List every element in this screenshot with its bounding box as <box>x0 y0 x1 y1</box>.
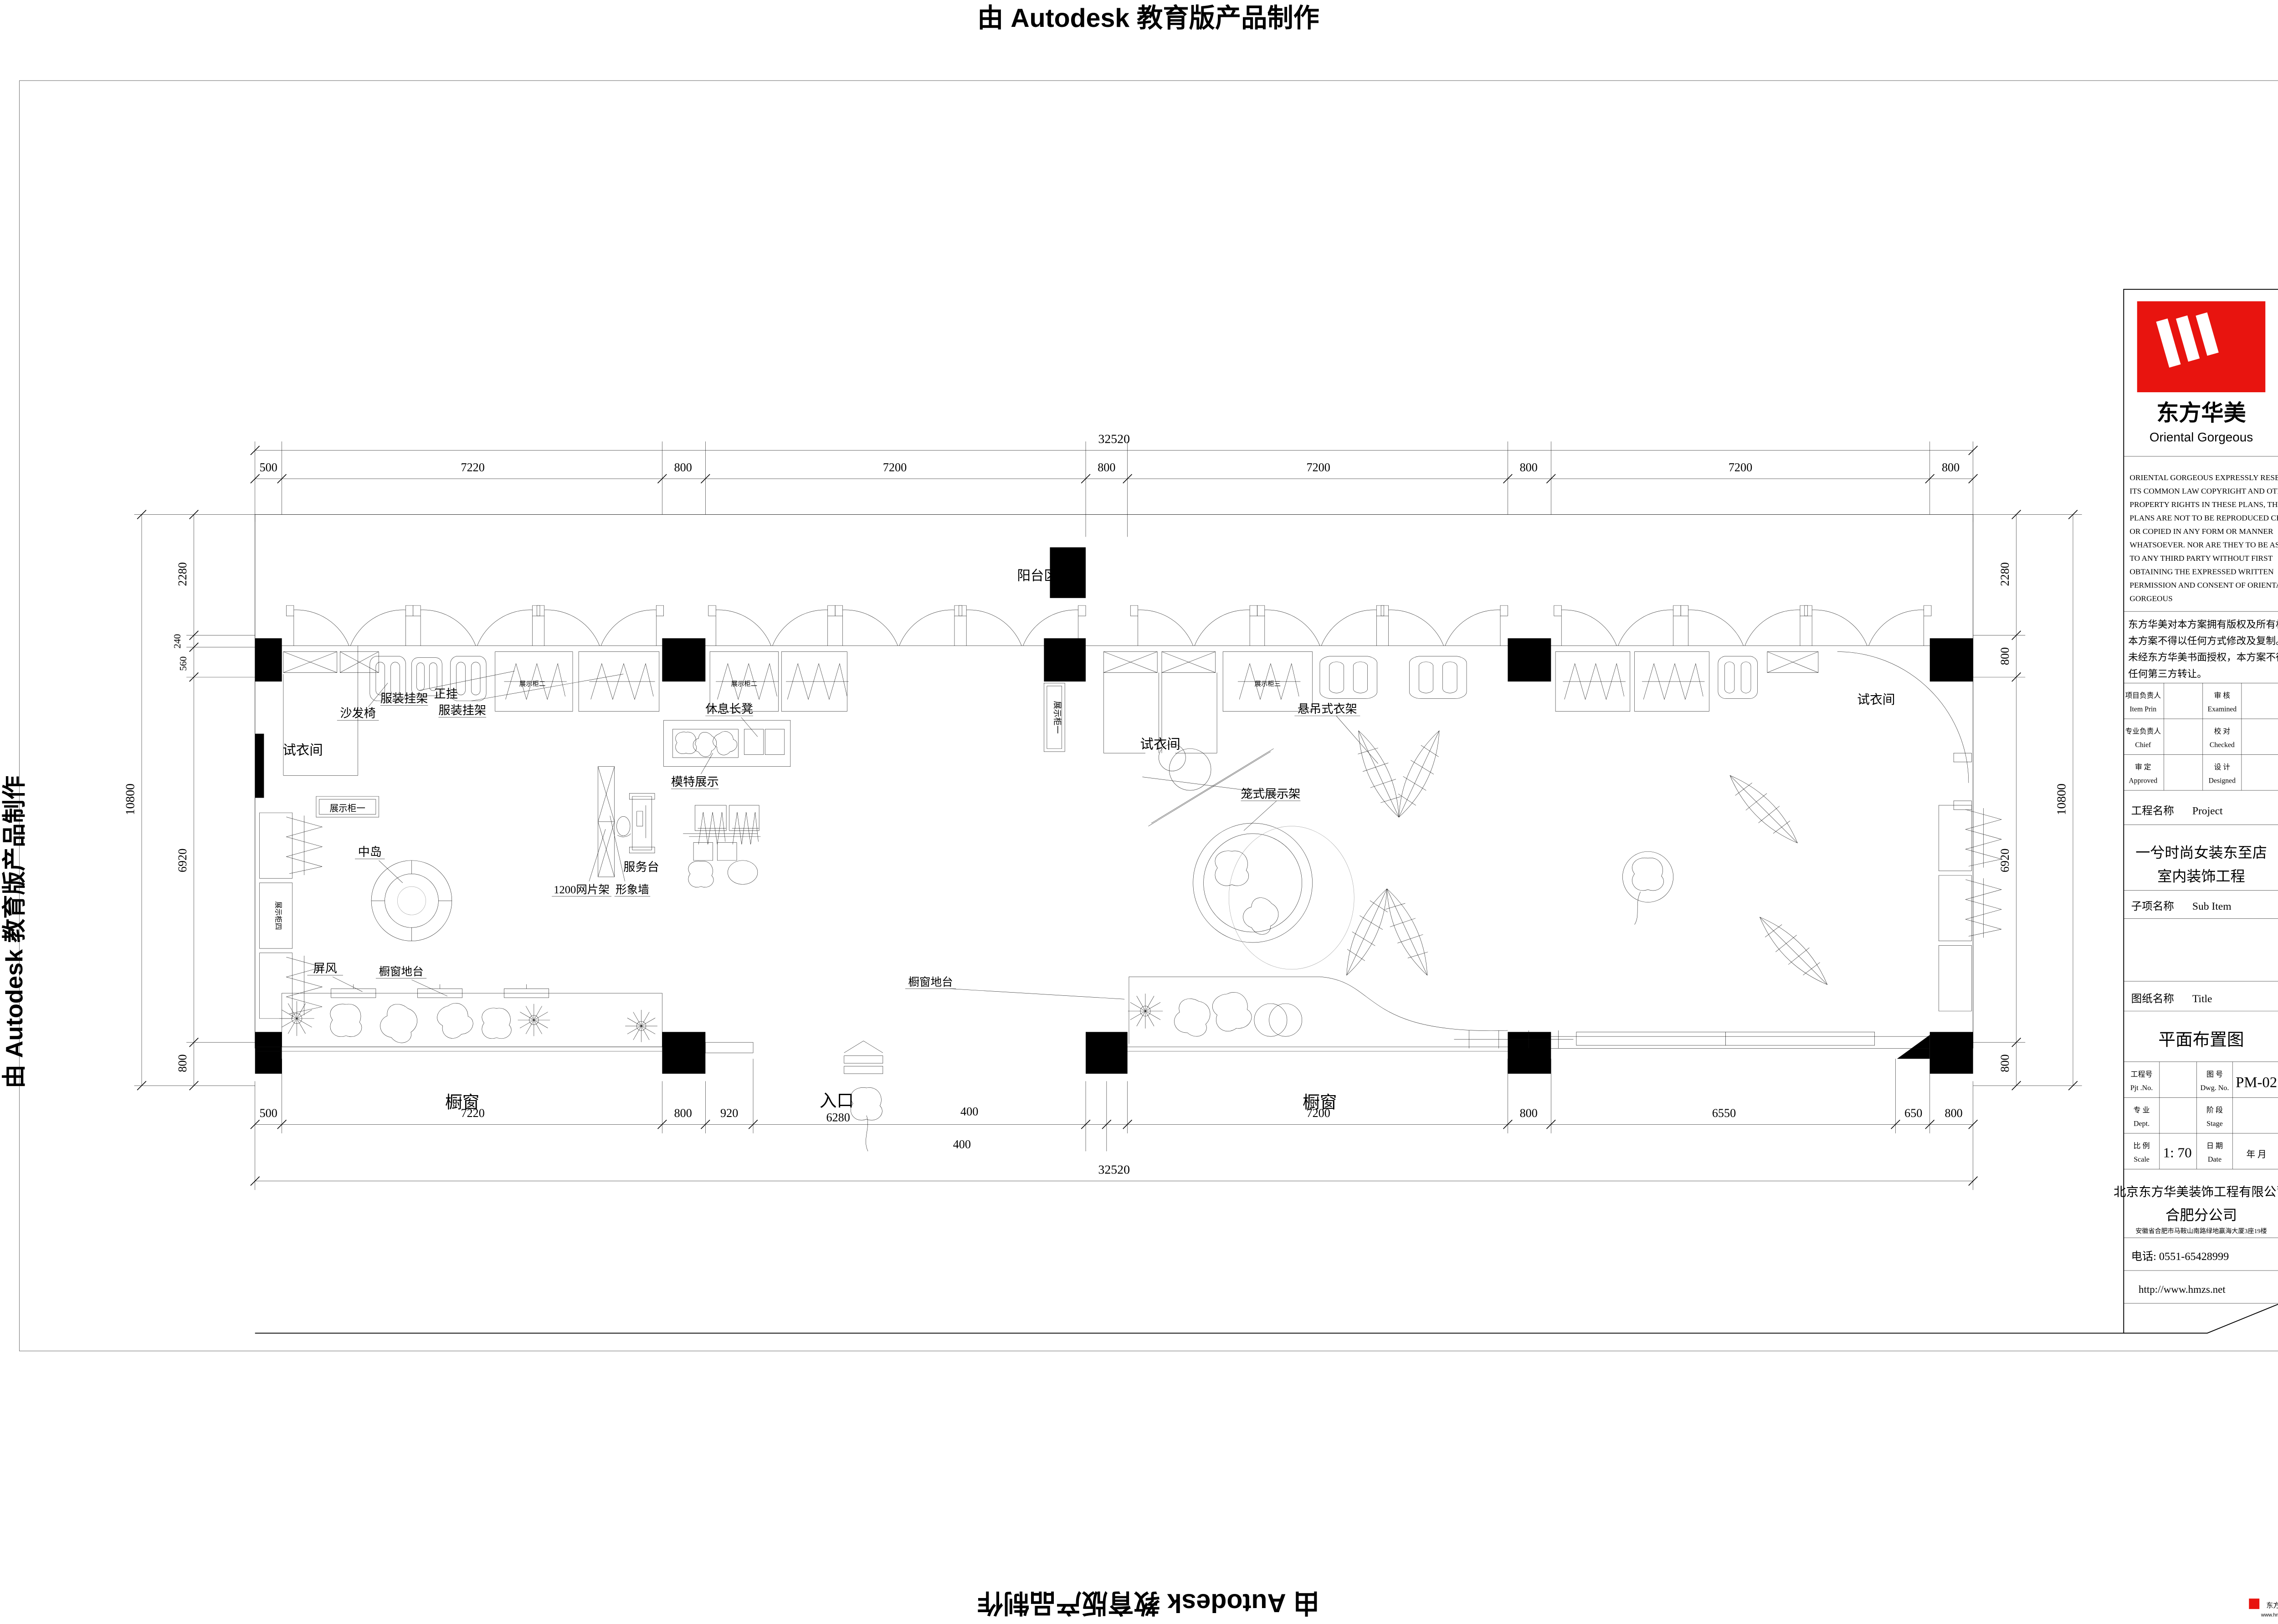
balcony-doors <box>286 605 1931 646</box>
signoff-label: Chief <box>2135 741 2151 749</box>
plan-fixtures <box>260 646 2001 1152</box>
structural-columns <box>255 547 1973 1074</box>
dim-bottom: 6550 <box>1712 1107 1736 1120</box>
brand-cn: 东方华美 <box>2156 401 2246 425</box>
subitem-label-cn: 子项名称 <box>2131 900 2174 912</box>
dim-bottom: 500 <box>260 1107 277 1120</box>
label-rack-2: 服装挂架 <box>438 704 486 717</box>
copyright-line: OBTAINING THE EXPRESSED WRITTEN <box>2129 567 2274 576</box>
window-left-contents <box>279 999 657 1047</box>
signoff-label: 设 计 <box>2214 763 2231 771</box>
cage-display-rack <box>1193 823 1354 969</box>
copyright-line: WHATSOEVER. NOR ARE THEY TO BE ASSIGHED <box>2129 540 2278 549</box>
dim-bottom: 400 <box>953 1138 971 1151</box>
wall-segment <box>705 1042 753 1053</box>
leaders <box>333 671 1378 999</box>
center-island <box>371 861 452 941</box>
column <box>662 638 705 681</box>
dim-bottom: 650 <box>1904 1107 1922 1120</box>
service-desk <box>629 794 655 853</box>
copyright-line: PROPERTY RIGHTS IN THESE PLANS, THESE <box>2129 500 2278 509</box>
badge-site: www.hmzs.net <box>2261 1612 2278 1618</box>
dim-bottom: 800 <box>674 1107 692 1120</box>
watermark-top: 由 Autodesk 教育版产品制作 <box>977 4 1319 33</box>
watermark-bottom: 由 Autodesk 教育版产品制作 <box>977 1588 1319 1617</box>
signoff-label: Approved <box>2129 777 2157 785</box>
field-label: 日 期 <box>2206 1142 2223 1150</box>
hanging-rod-fixture <box>1142 744 1294 826</box>
benches-top-right <box>1320 652 1818 699</box>
copyright-line: PERMISSION AND CONSENT OF ORIENTAL <box>2129 581 2278 589</box>
dim-top-total: 32520 <box>1098 432 1130 446</box>
title-block: 东方华美 Oriental Gorgeous ORIENTAL GORGEOUS… <box>2114 301 2278 1303</box>
field-label: Pjt .No. <box>2130 1084 2153 1092</box>
label-cage-rack: 笼式展示架 <box>1241 787 1300 800</box>
rest-bench <box>744 729 764 755</box>
label-entrance: 入口 <box>820 1091 854 1111</box>
copyright-line: OR COPIED IN ANY FORM OR MANNER <box>2129 527 2273 536</box>
signoff-label: Checked <box>2210 741 2235 749</box>
field-label: 图 号 <box>2206 1071 2223 1079</box>
label-bench: 休息长凳 <box>705 702 753 716</box>
label-fitting-center: 试衣间 <box>1140 737 1180 752</box>
copyright-line-cn: 东方华美对本方案拥有版权及所有权。 <box>2128 619 2278 630</box>
field-label: Scale <box>2134 1156 2150 1163</box>
column <box>662 1032 705 1074</box>
company-phone: 电话: 0551-65428999 <box>2131 1250 2229 1263</box>
window-platform-left-outline <box>282 993 662 1047</box>
image-wall <box>598 767 615 877</box>
dim-left: 6920 <box>176 849 189 872</box>
column <box>1508 638 1551 681</box>
copyright-line-cn: 任何第三方转让。 <box>2128 668 2207 679</box>
project-label-cn: 工程名称 <box>2131 804 2174 817</box>
label-cabinet-two: 展示柜二 <box>519 680 546 688</box>
field-label: 比 例 <box>2134 1142 2150 1150</box>
label-service-desk: 服务台 <box>623 861 659 874</box>
field-label: Date <box>2208 1156 2222 1163</box>
badge-brand: 东方华美 <box>2266 1602 2278 1609</box>
field-label: Dwg. No. <box>2201 1084 2229 1092</box>
copyright-line: ITS COMMON LAW COPYRIGHT AND OTHER <box>2129 487 2278 496</box>
date-value: 年 月 <box>2247 1149 2267 1159</box>
copyright-line-cn: 未经东方华美书面授权，本方案不得向 <box>2128 652 2278 663</box>
copyright-english: ORIENTAL GORGEOUS EXPRESSLY RESERVES ITS… <box>2129 473 2278 603</box>
cad-floor-plan-sheet: 由 Autodesk 教育版产品制作 由 Autodesk 教育版产品制作 由 … <box>0 0 2278 1624</box>
window-platform-right-outline <box>1129 977 1508 1044</box>
field-label: 阶 段 <box>2206 1106 2223 1114</box>
label-rack-1: 服装挂架 <box>380 692 428 705</box>
dim-top: 800 <box>1520 461 1538 474</box>
copyright-chinese: 东方华美对本方案拥有版权及所有权。 本方案不得以任何方式修改及复制。 未经东方华… <box>2128 619 2278 679</box>
label-cabinet-two: 展示柜二 <box>731 680 758 688</box>
dim-left: 240 <box>172 634 183 649</box>
column <box>255 638 282 681</box>
label-cabinet-one-v: 展示柜一 <box>1052 701 1062 734</box>
column <box>1044 638 1086 681</box>
label-mesh-rack: 1200网片架 <box>554 883 610 896</box>
column <box>255 1032 282 1074</box>
dim-left: 2280 <box>176 562 189 586</box>
copyright-line: GORGEOUS <box>2129 594 2172 603</box>
person-circle <box>1622 851 1673 924</box>
label-window-left: 橱窗 <box>445 1093 479 1112</box>
label-front-hang: 正挂 <box>434 687 458 701</box>
label-cabinet-four: 展示柜四 <box>274 902 282 930</box>
dim-left: 800 <box>176 1054 189 1072</box>
column <box>1930 1032 1973 1074</box>
label-window-platform-right: 橱窗地台 <box>908 976 953 989</box>
center-racks-tables <box>683 805 760 887</box>
dim-top: 800 <box>674 461 692 474</box>
copyright-line-cn: 本方案不得以任何方式修改及复制。 <box>2128 635 2278 646</box>
folding-screens <box>331 984 549 998</box>
wall-pier <box>255 734 264 798</box>
column <box>1508 1032 1551 1074</box>
field-label: 专 业 <box>2134 1106 2150 1114</box>
label-window-platform-left: 橱窗地台 <box>379 965 423 978</box>
dim-right: 2280 <box>1998 562 2011 586</box>
dimensions: 32520 500 7220 800 7200 800 7200 800 720… <box>123 432 2082 1190</box>
company-logo: 东方华美 Oriental Gorgeous <box>2124 301 2278 456</box>
scale-value: 1: 70 <box>2163 1144 2192 1160</box>
copyright-line: PLANS ARE NOT TO BE REPRODUCED CHANGED <box>2129 514 2278 523</box>
dim-right: 800 <box>1998 647 2011 665</box>
copyright-line: TO ANY THIRD PARTY WITHOUT FIRST <box>2129 554 2273 563</box>
rest-bench <box>765 729 785 755</box>
signoff-label: Examined <box>2207 706 2237 713</box>
field-label: Stage <box>2206 1120 2223 1128</box>
door-corner-fill <box>1897 1035 1930 1059</box>
company-website: http://www.hmzs.net <box>2139 1284 2226 1295</box>
dim-right-total: 10800 <box>2055 784 2069 815</box>
label-screen: 屏风 <box>313 962 337 975</box>
sheet-label-cn: 图纸名称 <box>2131 993 2174 1005</box>
plan-walls <box>255 514 1973 1074</box>
label-balcony: 阳台区域 <box>1017 568 1071 583</box>
signoff-label: Item Prin <box>2129 706 2156 713</box>
field-label: Dept. <box>2134 1120 2150 1128</box>
copyright-line: ORIENTAL GORGEOUS EXPRESSLY RESERVES <box>2129 473 2278 482</box>
dim-right: 6920 <box>1998 849 2011 872</box>
left-wall-cabinets <box>260 813 322 1019</box>
dim-left: 560 <box>178 656 189 671</box>
label-cabinet-three: 展示柜三 <box>1255 680 1281 688</box>
info-table: 工程号 Pjt .No. 图 号 Dwg. No. PM-02 专 业 Dept… <box>2124 1062 2278 1169</box>
column <box>1086 1032 1128 1074</box>
field-label: 工程号 <box>2131 1071 2153 1079</box>
sheet-name: 平面布置图 <box>2158 1030 2244 1050</box>
label-cabinet-one-h: 展示柜一 <box>329 804 365 814</box>
dim-top: 7200 <box>1306 461 1330 474</box>
right-wall-cabinets <box>1939 805 2001 1011</box>
watermark-left: 由 Autodesk 教育版产品制作 <box>1 776 28 1089</box>
project-label-en: Project <box>2192 805 2223 817</box>
signoff-label: 审 核 <box>2214 692 2231 700</box>
mannequin-platform <box>664 720 790 766</box>
label-mannequin-display: 模特展示 <box>671 775 719 789</box>
label-fitting-left: 试衣间 <box>282 743 323 758</box>
hanging-leaf-racks <box>1334 725 1837 994</box>
signoff-label: Designed <box>2209 777 2236 785</box>
dim-right: 800 <box>1998 1054 2011 1072</box>
company-branch: 合肥分公司 <box>2165 1207 2237 1223</box>
door-panel <box>1954 753 1971 762</box>
label-hanging-rack: 悬吊式衣架 <box>1298 702 1357 716</box>
column <box>1930 638 1973 681</box>
company-name: 北京东方华美装饰工程有限公司 <box>2114 1185 2278 1199</box>
project-name-line1: 一兮时尚女装东至店 <box>2135 844 2267 861</box>
label-sofa-chair: 沙发椅 <box>340 707 376 720</box>
brand-en: Oriental Gorgeous <box>2150 430 2253 444</box>
signoff-table: 项目负责人 Item Prin 审 核 Examined 专业负责人 Chief… <box>2124 683 2278 790</box>
dim-top: 500 <box>260 461 277 474</box>
dim-top: 800 <box>1942 461 1960 474</box>
corner-watermark: 东方华美 www.hmzs.net <box>2249 1598 2278 1618</box>
dim-bottom: 920 <box>720 1107 738 1120</box>
window-right-contents <box>1128 989 1302 1040</box>
badge-logo <box>2249 1598 2259 1609</box>
dim-top: 7200 <box>1729 461 1752 474</box>
project-name-line2: 室内装饰工程 <box>2157 868 2245 885</box>
dim-left-total: 10800 <box>123 784 138 815</box>
signoff-label: 审 定 <box>2135 763 2151 771</box>
dim-top: 800 <box>1098 461 1115 474</box>
label-fitting-right: 试衣间 <box>1857 693 1895 707</box>
dim-bottom: 800 <box>1945 1107 1962 1120</box>
label-image-wall: 形象墙 <box>616 883 649 896</box>
dim-top: 7220 <box>461 461 484 474</box>
dim-bottom: 800 <box>1520 1107 1538 1120</box>
mirror <box>617 816 630 836</box>
signoff-label: 项目负责人 <box>2125 692 2161 700</box>
signoff-label: 校 对 <box>2214 727 2231 736</box>
dim-top: 7200 <box>883 461 907 474</box>
subitem-label-en: Sub Item <box>2192 901 2232 912</box>
label-window-right: 橱窗 <box>1303 1093 1337 1112</box>
company-address: 安徽省合肥市马鞍山南路绿地赢海大厦3座19楼 <box>2135 1227 2267 1235</box>
drawing-number: PM-02 <box>2236 1074 2277 1091</box>
label-island: 中岛 <box>358 845 382 859</box>
sheet-label-en: Title <box>2192 993 2212 1005</box>
dim-bottom-total: 32520 <box>1098 1163 1130 1177</box>
dim-bottom: 6280 <box>826 1111 850 1124</box>
dim-bottom: 400 <box>960 1105 978 1118</box>
signoff-label: 专业负责人 <box>2125 727 2161 736</box>
